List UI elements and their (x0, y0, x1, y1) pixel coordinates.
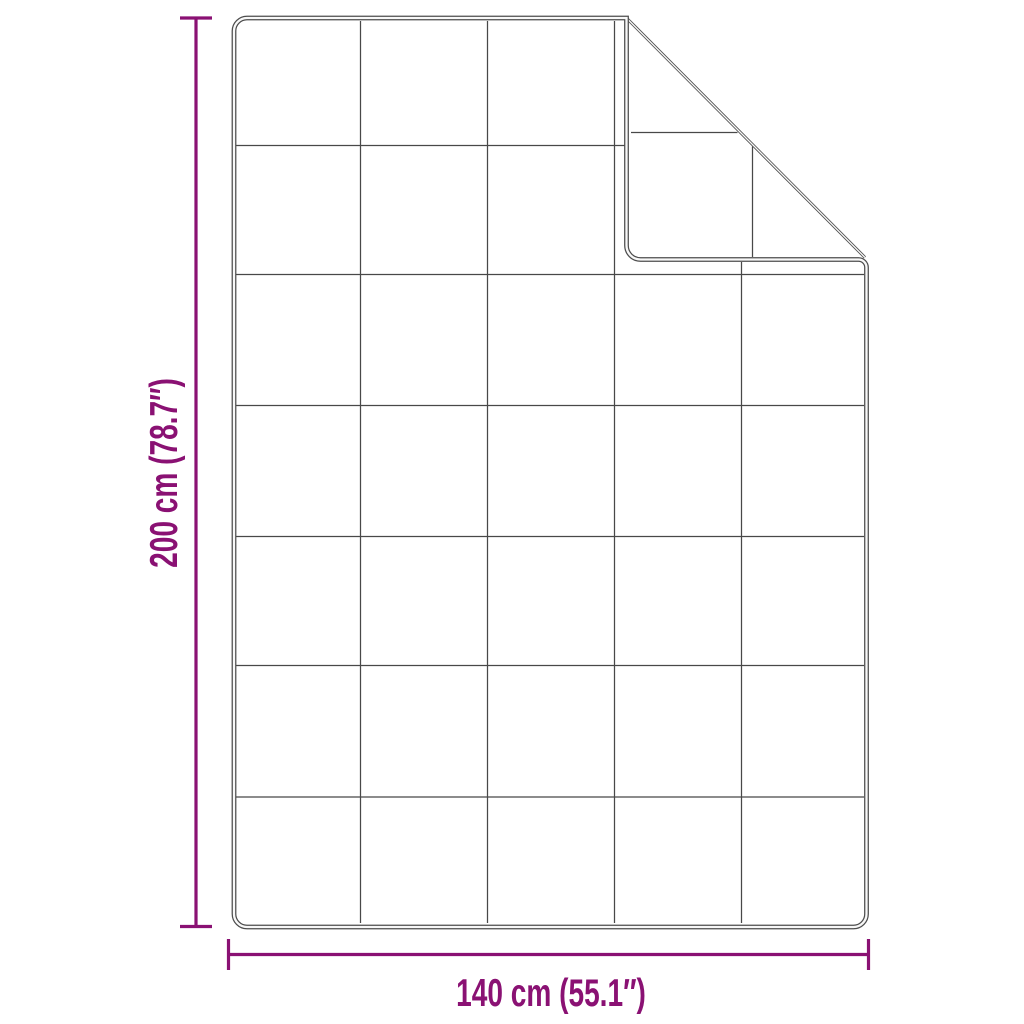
svg-text:200 cm (78.7″): 200 cm (78.7″) (143, 378, 187, 568)
svg-text:140 cm (55.1″): 140 cm (55.1″) (456, 972, 646, 1016)
